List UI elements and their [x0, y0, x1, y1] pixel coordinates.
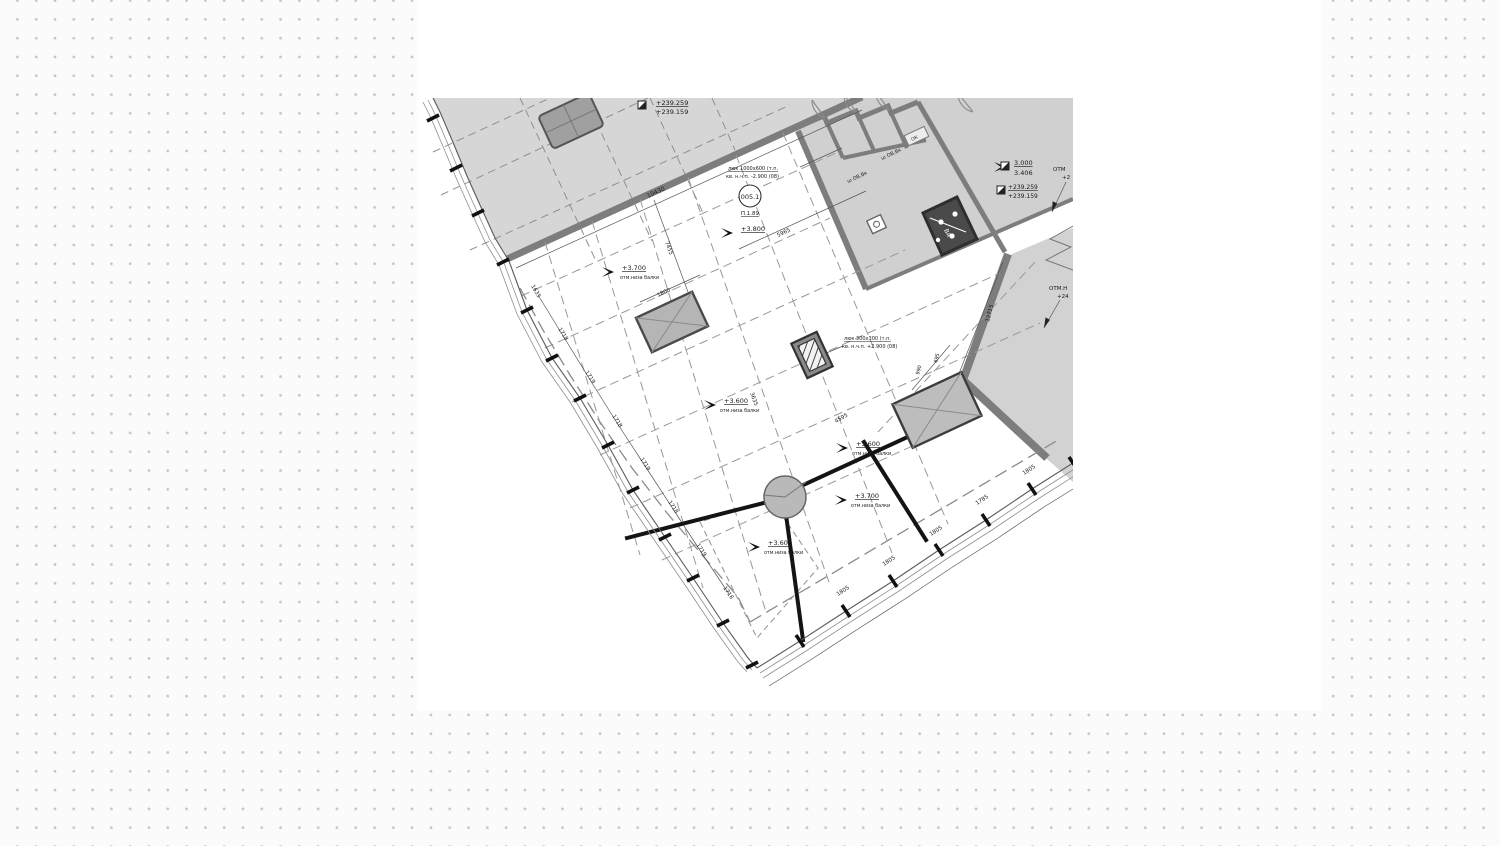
elev-3600-1-sub: отм.низа балки: [720, 408, 759, 414]
elev-right-1-lower: 3.406: [1014, 169, 1033, 177]
elev-3600-2: +3.600: [856, 440, 880, 448]
otm-right-1b: +2: [1062, 175, 1070, 181]
elev-3700-2-sub: отм.низа балки: [851, 503, 890, 509]
otm-right-1a: ОТМ: [1053, 167, 1066, 173]
elev-3800: +3.800: [741, 225, 765, 233]
room-tag-number: 005.1: [741, 193, 760, 201]
hatch-note-2b: кв. н.ч.п. +2.900 (08): [842, 344, 897, 350]
floor-plan-svg: +239.259+239.1593.0003.406+239.259+239.1…: [0, 0, 1500, 842]
elev-right-2-upper: +239.259: [1008, 184, 1038, 191]
otm-right-2a: ОТМ.Н: [1049, 286, 1067, 292]
elev-3700-2: +3.700: [855, 492, 879, 500]
room-tag-area: П.1.89: [741, 211, 760, 217]
hatch-note-2a: люк 300х300 (т.п.: [844, 336, 891, 342]
hatch-note-1a: люк 1000х600 (т.п.: [728, 166, 779, 172]
elev-3600-3-sub: отм.низа балки: [764, 550, 803, 556]
elev-3600-3: +3.600: [768, 539, 792, 547]
level-mark-icon: [1001, 162, 1009, 170]
elev-right-1-upper: 3.000: [1014, 159, 1033, 167]
elev-top-left-upper: +239.259: [656, 99, 688, 107]
hatch-note-1b: кв. н.ч.п. -2.900 (08): [726, 174, 779, 180]
whiteboard-stage: +239.259+239.1593.0003.406+239.259+239.1…: [0, 0, 1500, 842]
level-mark-icon: [638, 101, 646, 109]
elev-3700-1-sub: отм.низа балки: [620, 275, 659, 281]
otm-right-2b: +24: [1057, 294, 1069, 300]
elev-3700-1: +3.700: [622, 264, 646, 272]
elev-3600-1: +3.600: [724, 397, 748, 405]
elev-3600-2-sub: отм.низа балки: [852, 451, 891, 457]
column-circle: [763, 476, 806, 518]
elev-top-left-lower: +239.159: [656, 108, 688, 116]
elev-right-2-lower: +239.159: [1008, 193, 1038, 200]
level-mark-icon: [997, 186, 1005, 194]
